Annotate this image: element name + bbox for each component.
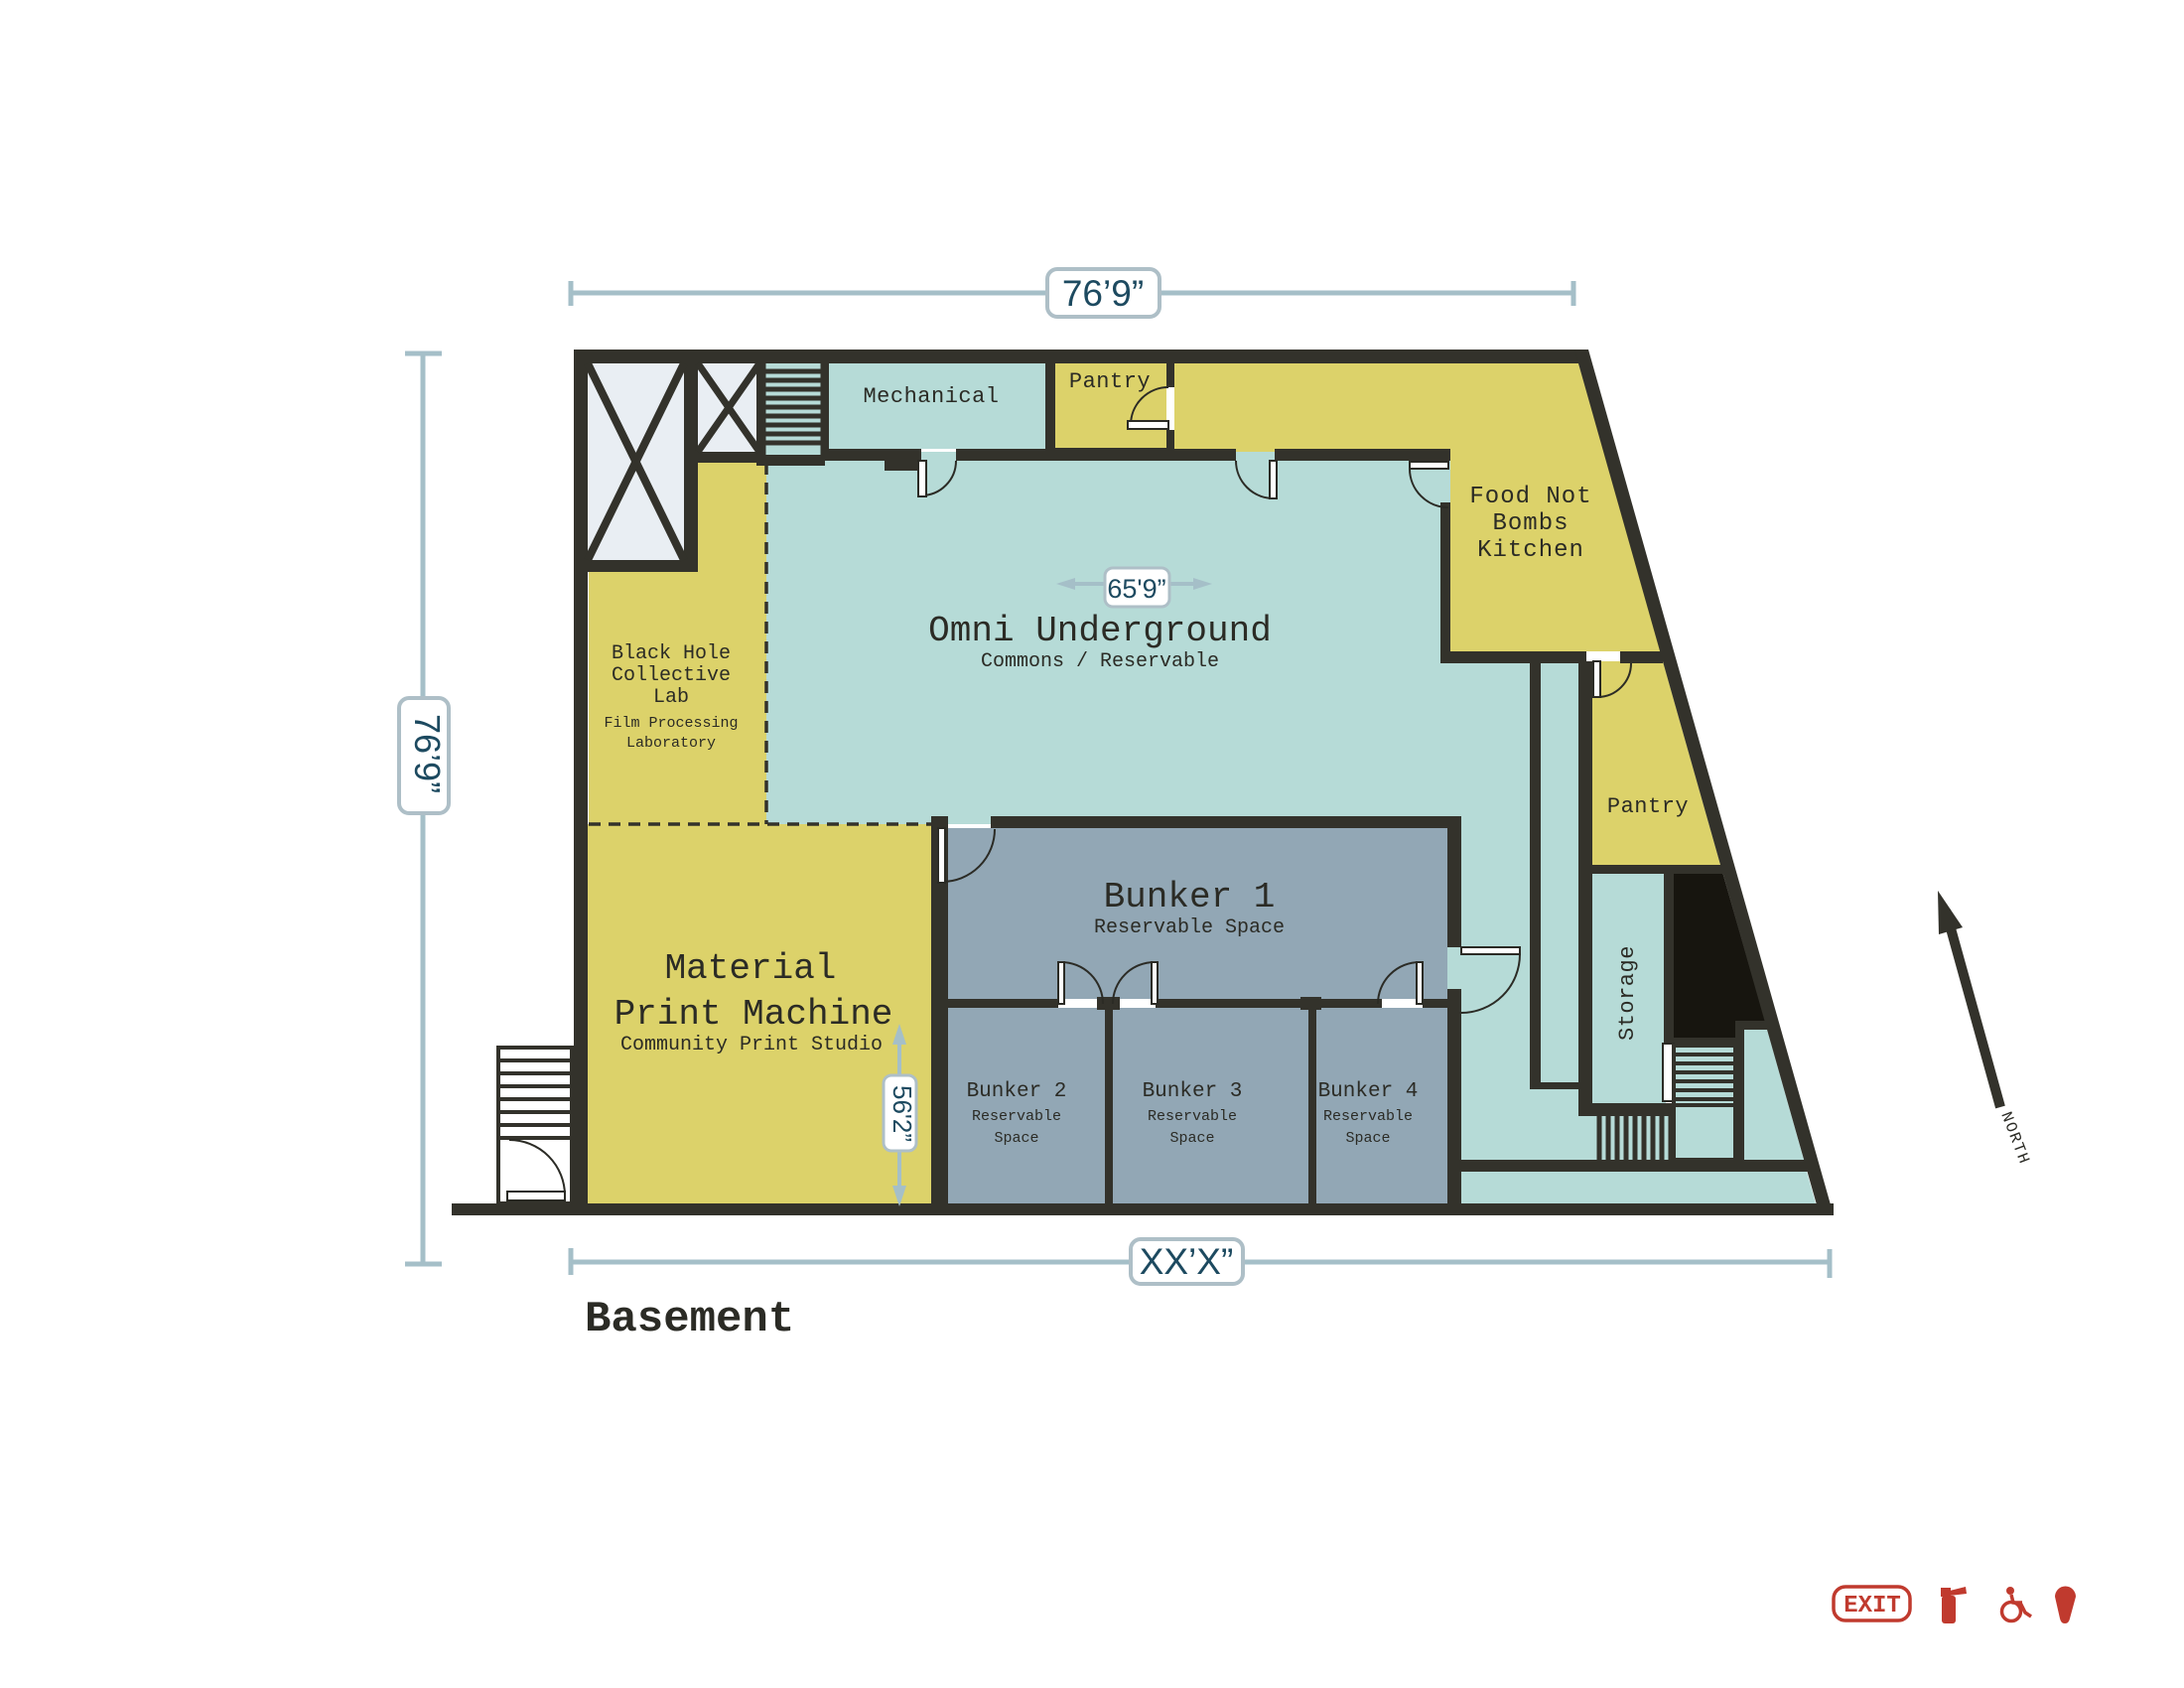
svg-text:Basement: Basement — [585, 1295, 794, 1344]
svg-text:Storage: Storage — [1615, 945, 1640, 1041]
svg-text:Pantry: Pantry — [1069, 369, 1151, 394]
svg-text:Laboratory: Laboratory — [626, 735, 716, 752]
svg-text:Lab: Lab — [653, 686, 689, 709]
svg-text:Commons / Reservable: Commons / Reservable — [981, 650, 1219, 673]
svg-text:Bunker 1: Bunker 1 — [1104, 877, 1276, 917]
svg-text:XX’X”: XX’X” — [1140, 1241, 1234, 1282]
svg-text:Material: Material — [665, 948, 837, 989]
svg-text:Food Not: Food Not — [1469, 484, 1591, 510]
svg-text:Bunker 3: Bunker 3 — [1143, 1080, 1243, 1103]
svg-text:Reservable Space: Reservable Space — [1094, 916, 1285, 939]
svg-text:76’9”: 76’9” — [1062, 273, 1144, 314]
svg-text:EXIT: EXIT — [1843, 1593, 1901, 1619]
svg-text:Reservable: Reservable — [1148, 1108, 1237, 1125]
svg-text:76’9”: 76’9” — [407, 714, 448, 793]
svg-text:Reservable: Reservable — [1323, 1108, 1413, 1125]
svg-text:Reservable: Reservable — [972, 1108, 1061, 1125]
svg-text:Space: Space — [1169, 1130, 1214, 1147]
svg-text:Collective: Collective — [612, 664, 731, 687]
svg-text:Bombs: Bombs — [1492, 510, 1569, 537]
svg-text:Mechanical: Mechanical — [863, 384, 999, 409]
svg-text:Film Processing: Film Processing — [604, 715, 738, 732]
svg-text:Bunker 2: Bunker 2 — [967, 1080, 1067, 1103]
svg-text:Print Machine: Print Machine — [614, 994, 893, 1035]
svg-text:Black Hole: Black Hole — [612, 642, 731, 665]
svg-text:Omni Underground: Omni Underground — [928, 611, 1272, 651]
svg-text:56'2”: 56'2” — [887, 1085, 917, 1142]
svg-text:Bunker 4: Bunker 4 — [1318, 1080, 1419, 1103]
svg-text:Pantry: Pantry — [1607, 794, 1689, 819]
svg-text:65'9”: 65'9” — [1107, 574, 1165, 604]
svg-text:Kitchen: Kitchen — [1477, 537, 1584, 564]
svg-text:Space: Space — [1345, 1130, 1390, 1147]
svg-text:Space: Space — [994, 1130, 1038, 1147]
svg-text:Community Print Studio: Community Print Studio — [620, 1034, 883, 1056]
